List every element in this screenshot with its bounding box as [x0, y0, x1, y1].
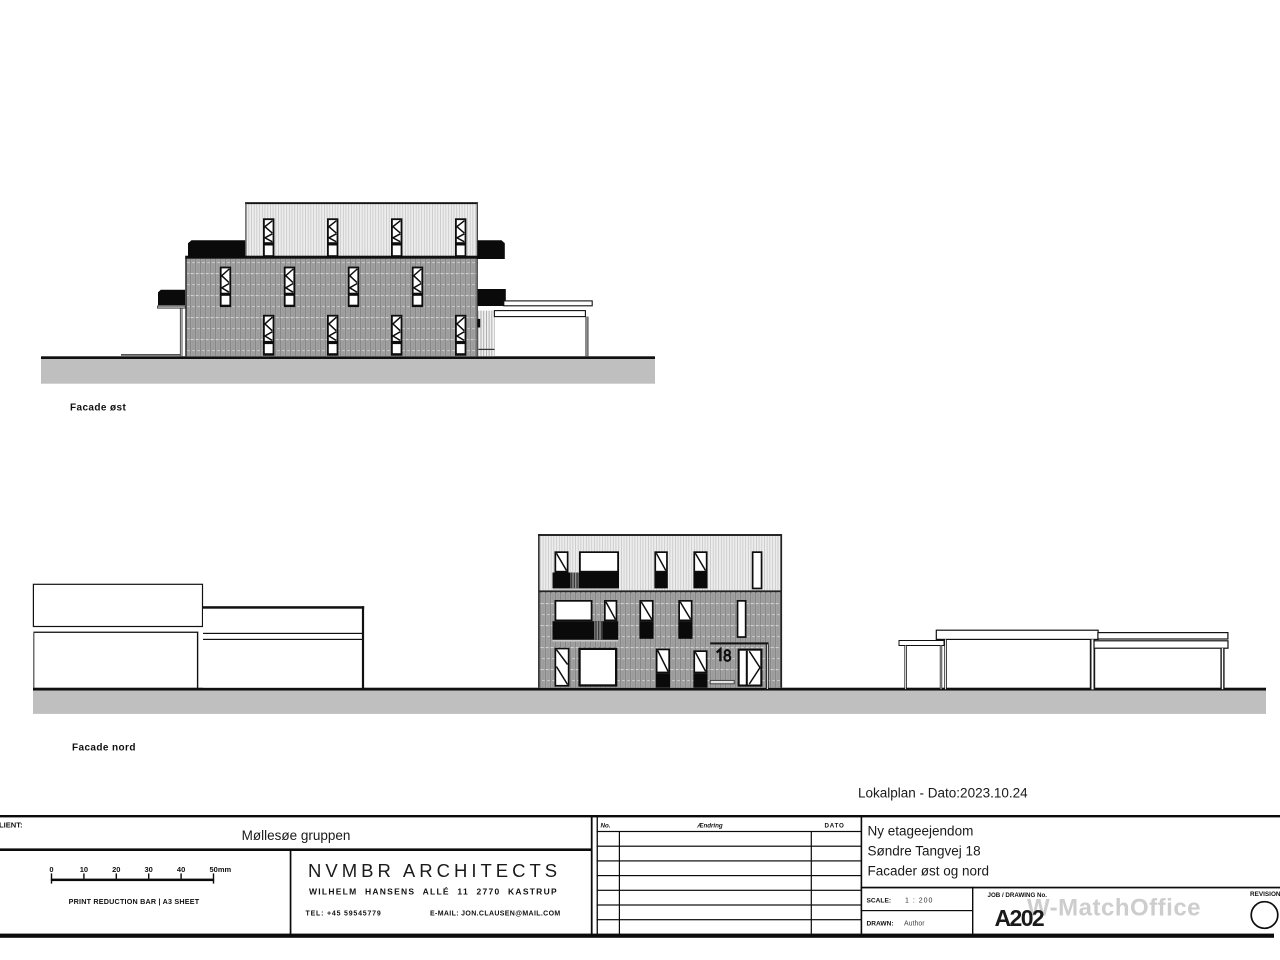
svg-text:DRAWN:: DRAWN: — [867, 921, 894, 928]
svg-text:Facade nord: Facade nord — [72, 743, 136, 754]
svg-text:W-MatchOffice: W-MatchOffice — [1027, 895, 1201, 922]
svg-text:Ændring: Ændring — [696, 823, 723, 830]
svg-text:No.: No. — [601, 823, 611, 830]
svg-text:Ny etageejendom: Ny etageejendom — [868, 824, 974, 839]
svg-text:20: 20 — [112, 865, 120, 874]
svg-text:JOB / DRAWING No.: JOB / DRAWING No. — [988, 892, 1048, 899]
svg-text:PRINT REDUCTION BAR | A3 SHEE: PRINT REDUCTION BAR | A3 SHEET — [69, 897, 200, 906]
svg-text:WILHELM HANSENS ALLÉ 11 2770 K: WILHELM HANSENS ALLÉ 11 2770 KASTRUP — [309, 887, 558, 897]
svg-text:Lokalplan - Dato:2023.10.24: Lokalplan - Dato:2023.10.24 — [858, 786, 1028, 801]
svg-text:SCALE:: SCALE: — [867, 898, 892, 905]
svg-text:50mm: 50mm — [210, 865, 232, 874]
svg-text:DATO: DATO — [825, 823, 845, 830]
svg-text:CLIENT:: CLIENT: — [0, 821, 23, 830]
svg-text:Author: Author — [904, 921, 925, 928]
svg-text:Møllesøe gruppen: Møllesøe gruppen — [242, 828, 351, 843]
svg-text:Facader øst og nord: Facader øst og nord — [868, 864, 990, 879]
svg-text:A202: A202 — [995, 905, 1044, 931]
svg-text:40: 40 — [177, 865, 185, 874]
svg-text:E-MAIL: JON.CLAUSEN@MAIL.COM: E-MAIL: JON.CLAUSEN@MAIL.COM — [430, 911, 561, 918]
svg-text:Søndre Tangvej 18: Søndre Tangvej 18 — [868, 844, 981, 859]
svg-text:Facade øst: Facade øst — [70, 403, 127, 414]
svg-text:0: 0 — [49, 865, 53, 874]
svg-text:TEL: +45 59545779: TEL: +45 59545779 — [306, 911, 382, 918]
svg-text:30: 30 — [145, 865, 153, 874]
svg-text:REVISION: REVISION — [1250, 891, 1280, 898]
svg-text:NVMBR ARCHITECTS: NVMBR ARCHITECTS — [308, 860, 561, 881]
svg-text:10: 10 — [80, 865, 88, 874]
svg-text:1 : 200: 1 : 200 — [905, 898, 933, 905]
